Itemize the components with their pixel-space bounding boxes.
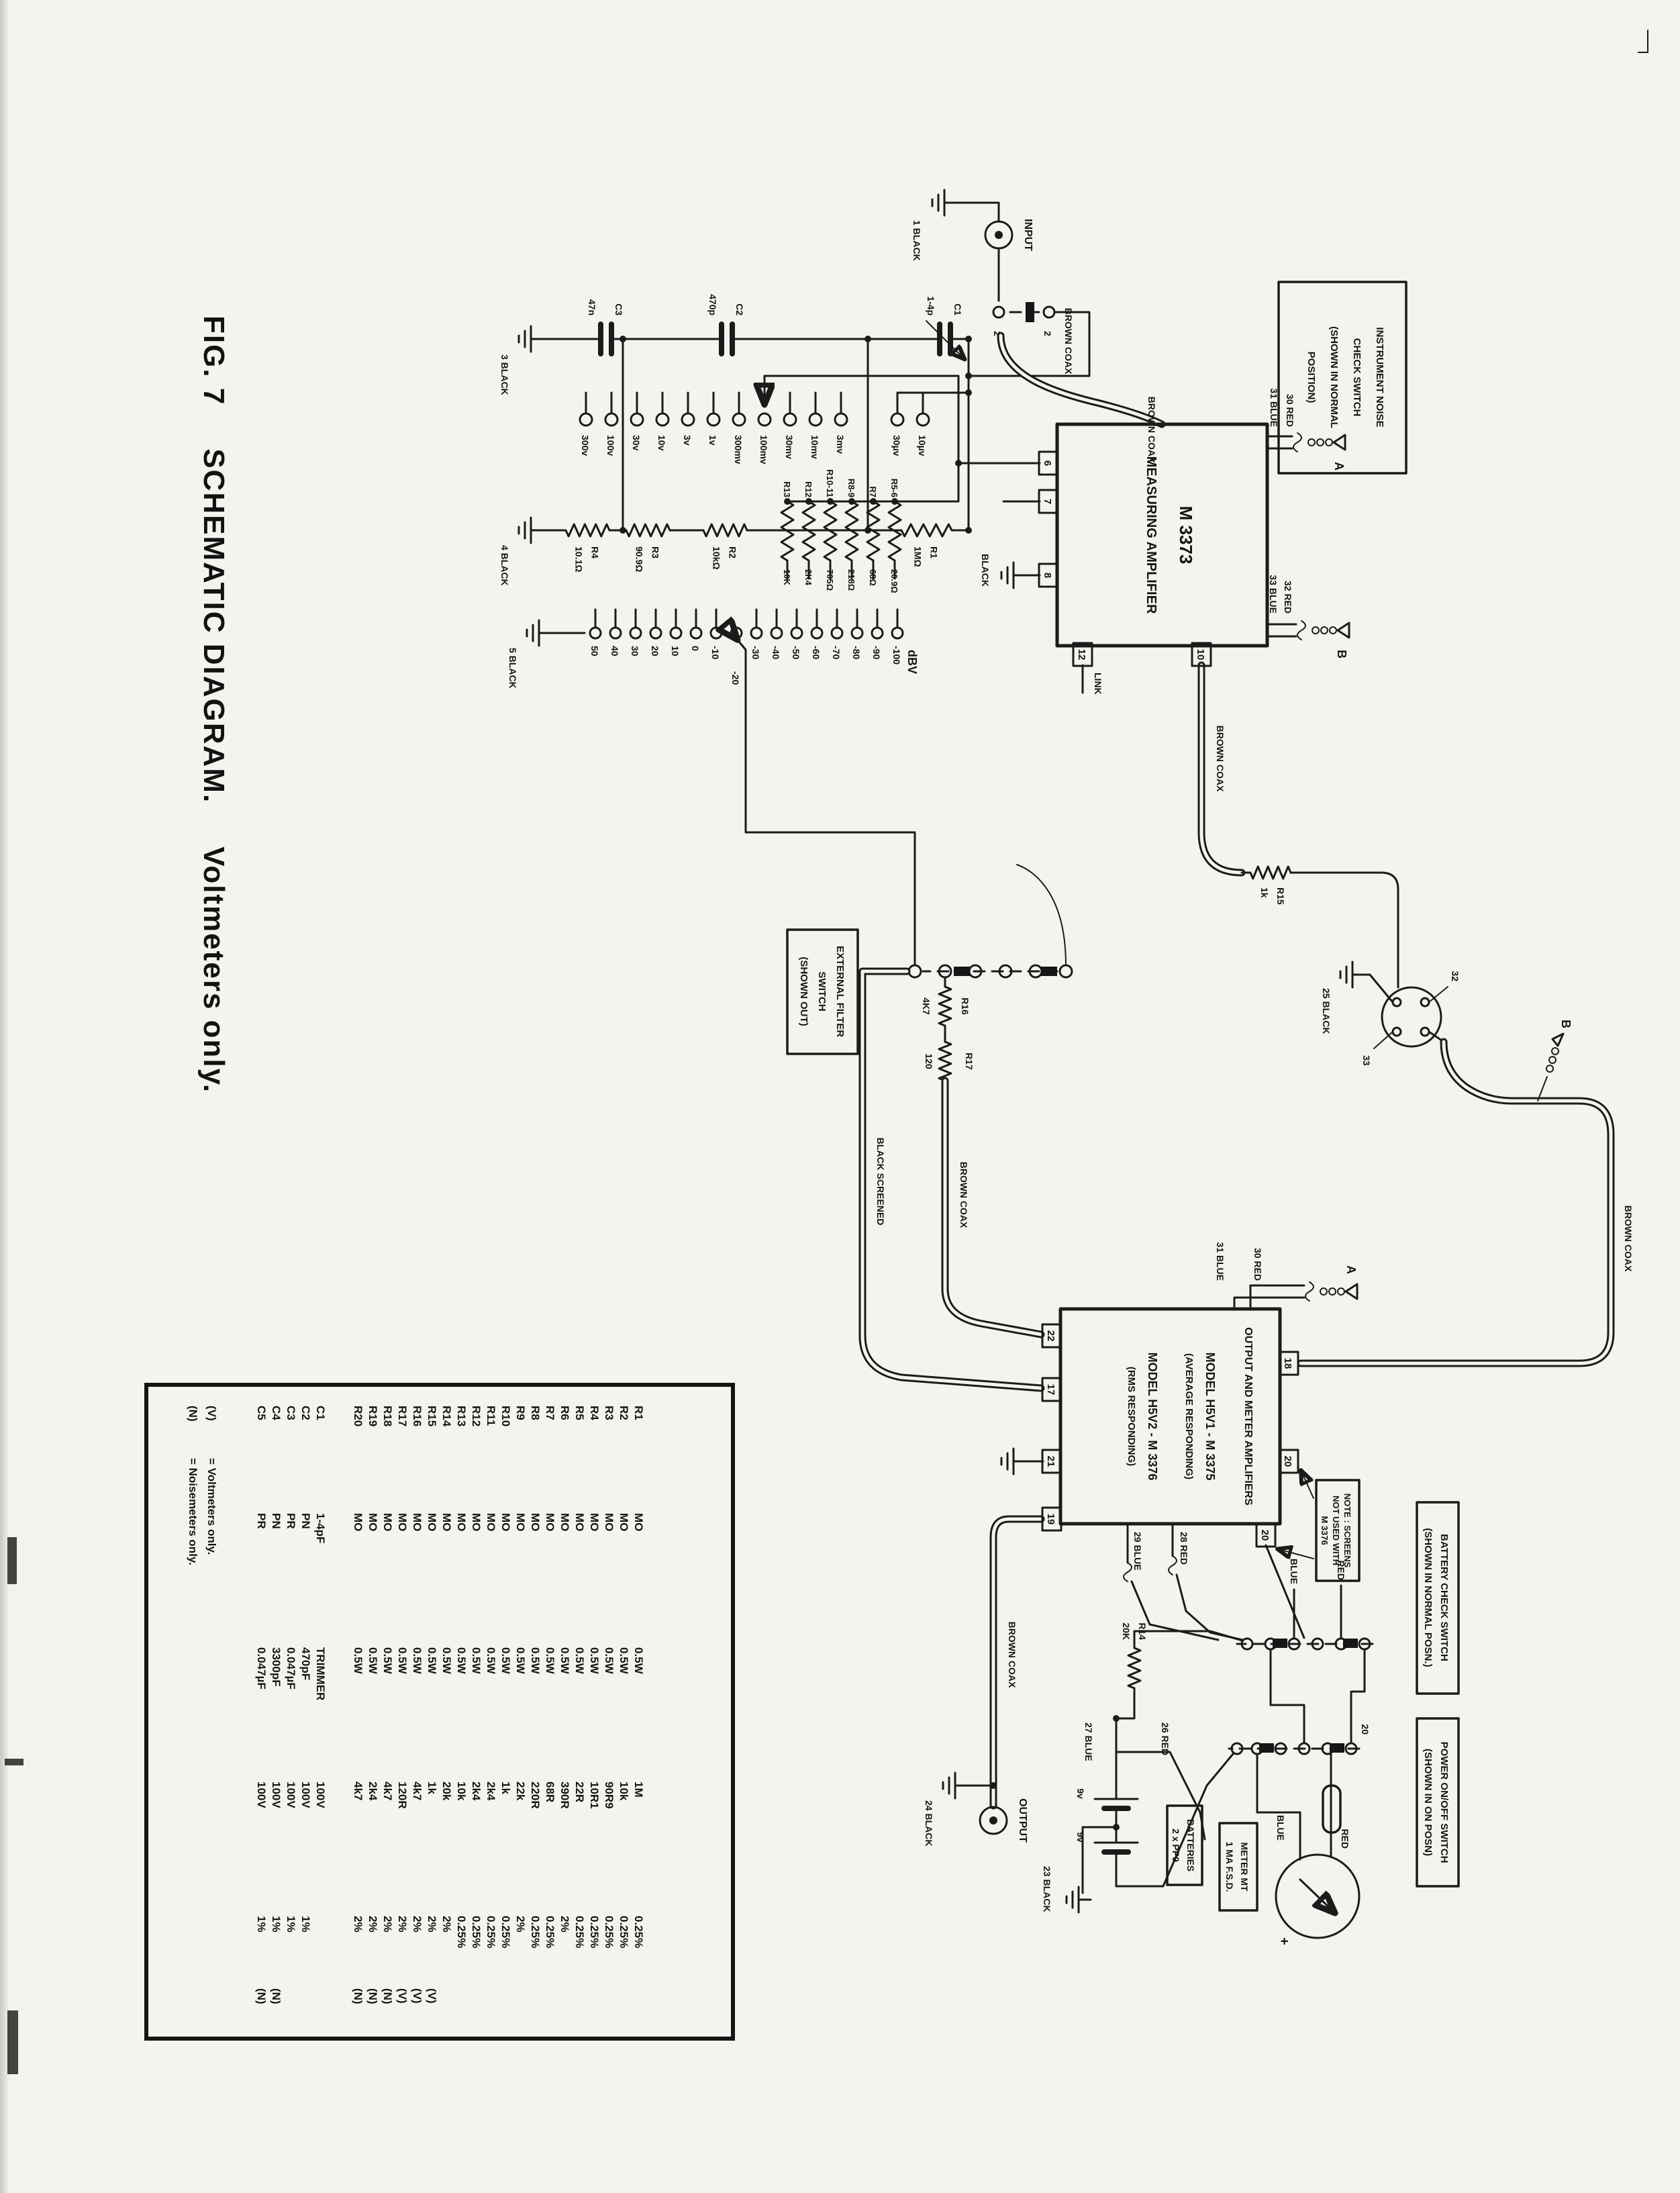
part-field: 2k4: [469, 1782, 483, 1800]
ground-21: [1001, 1449, 1026, 1474]
part-field: (N): [254, 1988, 268, 2004]
wire-31-blue: 31 BLUE: [1269, 388, 1279, 427]
dbv-tap-label: -100: [891, 646, 902, 665]
ground-23: [1067, 1887, 1091, 1912]
part-field: 4k7: [351, 1782, 364, 1800]
output-label: OUTPUT: [1017, 1798, 1028, 1843]
noise-switch-contact: [1044, 307, 1054, 318]
cap-value: 470p: [707, 294, 718, 315]
ground-3: [519, 326, 543, 352]
part-field: 100V: [299, 1782, 312, 1808]
noise-check-switch-box: [1279, 282, 1406, 473]
part-field: 0.25%: [587, 1916, 601, 1948]
round-connector: [1382, 987, 1441, 1046]
part-ref: R8: [528, 1406, 542, 1420]
ext-filter-line: EXTERNAL FILTER: [834, 946, 846, 1037]
part-ref: R15: [425, 1406, 438, 1426]
meter-section: + RED BLUE METER MT 1 MA F.S.D.: [1220, 1754, 1359, 1945]
pin-33-label: 33: [1361, 1055, 1372, 1066]
part-field: 10R1: [587, 1782, 601, 1809]
parts-table-row: C11-4pFTRIMMER100V: [312, 1387, 327, 2037]
ground-amp: [1001, 563, 1026, 588]
noise-box-line: CHECK SWITCH: [1351, 338, 1363, 417]
part-field: MO: [484, 1513, 497, 1531]
meter-box-line: METER MT: [1239, 1842, 1250, 1892]
part-field: 20k: [440, 1782, 453, 1800]
parts-table-legend-row: (N)= Noisemeters only.: [181, 1387, 199, 2037]
clip-a-label: A: [1332, 462, 1346, 471]
input-section: INPUT 1 BLACK 2 2 INSTRUMENT NOISE CHECK…: [911, 190, 1406, 473]
parts-table-row: R2MO0.5W10k0.25%: [615, 1387, 630, 2037]
parts-table-row: R14MO0.5W20k2%: [438, 1387, 453, 2037]
part-field: 0.047µF: [254, 1647, 268, 1690]
range-tap-label: 10mv: [809, 435, 820, 459]
part-field: 1%: [284, 1916, 297, 1933]
parts-table-row: R7MO0.5W68R0.25%: [542, 1387, 556, 2037]
figure-name: SCHEMATIC DIAGRAM.: [197, 448, 230, 803]
part-field: 1k: [425, 1782, 438, 1794]
cap-name: C3: [613, 303, 624, 315]
part-ref: C1: [313, 1406, 327, 1420]
part-field: MO: [499, 1513, 512, 1531]
part-field: 100V: [254, 1782, 268, 1808]
part-ref: R2: [617, 1406, 630, 1420]
part-ref: R19: [366, 1406, 379, 1426]
out-amp-line: MODEL H5V1 - M 3375: [1203, 1353, 1217, 1481]
part-field: 0.5W: [602, 1647, 615, 1674]
parts-table: R1MO0.5W1M0.25%R2MO0.5W10k0.25%R3MO0.5W9…: [144, 1383, 735, 2041]
ground-4-label: 4 BLACK: [499, 545, 510, 586]
part-field: 120R: [395, 1782, 409, 1809]
measuring-amp-model: M 3373: [1176, 506, 1196, 565]
resistor-R14: [1128, 1648, 1140, 1688]
part-field: 0.5W: [395, 1647, 409, 1674]
part-field: 100V: [313, 1782, 327, 1808]
part-field: 0.25%: [543, 1916, 556, 1948]
part-field: 0.5W: [366, 1647, 379, 1674]
ground-1-label: 1 BLACK: [911, 220, 922, 261]
part-field: PR: [254, 1513, 268, 1529]
range-tap: [835, 413, 847, 426]
part-field: (V): [395, 1988, 409, 2004]
part-field: 0.25%: [484, 1916, 497, 1948]
part-field: MO: [602, 1513, 615, 1531]
parts-table-row: R19MO0.5W2k42%(N): [364, 1387, 379, 2037]
part-field: 1%: [299, 1916, 312, 1933]
part-field: 4k7: [410, 1782, 424, 1800]
part-field: 10k: [617, 1782, 630, 1800]
out-amp-line: (RMS RESPONDING): [1126, 1367, 1137, 1466]
part-field: 0.5W: [528, 1647, 542, 1674]
part-field: 22k: [513, 1782, 527, 1800]
r16-name: R16: [960, 997, 971, 1015]
dbv-tap-label: -60: [811, 646, 822, 659]
battery-check-line: (SHOWN IN NORMAL POSN.): [1422, 1528, 1434, 1667]
terminal-number: 18: [1282, 1358, 1293, 1369]
part-field: 0.5W: [425, 1647, 438, 1674]
dbv-resistor-value: 20.9Ω: [889, 569, 899, 593]
dbv-tap: [711, 628, 722, 638]
part-field: 0.5W: [632, 1647, 645, 1674]
legend-text: = Voltmeters only.: [205, 1458, 218, 1555]
part-field: 0.5W: [381, 1647, 394, 1674]
part-field: 0.5W: [499, 1647, 512, 1674]
range-tap-label: 30v: [631, 435, 642, 451]
parts-table-row: R18MO0.5W4k72%(N): [379, 1387, 394, 2037]
part-field: 0.5W: [484, 1647, 497, 1674]
capacitor-C3: [601, 324, 611, 354]
part-field: TRIMMER: [313, 1647, 327, 1700]
range-tap: [784, 413, 796, 426]
dbv-tap: [771, 628, 782, 638]
brown-coax-label: BROWN COAX: [1063, 308, 1074, 375]
figure-number: FIG. 7: [197, 315, 230, 405]
range-tap-label: 3v: [682, 435, 693, 446]
dbv-resistor-name: R12: [803, 481, 813, 497]
crocodile-clip-b: [1338, 623, 1349, 638]
terminal-number: 20: [1282, 1456, 1293, 1467]
part-field: 0.5W: [351, 1647, 364, 1674]
part-field: (N): [351, 1988, 364, 2004]
wire-29-blue: 29 BLUE: [1132, 1532, 1143, 1571]
range-tap: [631, 413, 643, 426]
resistor-value: 10.1Ω: [574, 546, 585, 572]
wire-31-blue: 31 BLUE: [1215, 1242, 1226, 1281]
terminal-number: 19: [1045, 1514, 1056, 1525]
dbv-tap: [691, 628, 701, 638]
external-filter-switch: EXTERNAL FILTER SWITCH (SHOWN OUT) R16 4…: [787, 865, 1072, 1388]
dbv-resistor-value: 10K: [782, 569, 792, 585]
parts-table-row: R3MO0.5W90R90.25%: [601, 1387, 615, 2037]
dbv-tap-label: -20: [730, 671, 741, 685]
r15-name: R15: [1275, 887, 1286, 905]
resistor-R16: [939, 987, 951, 1026]
part-field: 0.5W: [469, 1647, 483, 1674]
part-ref: C3: [284, 1406, 297, 1420]
range-tap: [758, 413, 771, 426]
parts-table-row: R12MO0.5W2k40.25%: [468, 1387, 483, 2037]
parts-table-row: R10MO0.5W1k0.25%: [497, 1387, 512, 2037]
part-field: (N): [366, 1988, 379, 2004]
parts-table-row: R20MO0.5W4k72%(N): [350, 1387, 364, 2037]
dbv-resistor-name: R5-6: [889, 479, 899, 497]
measuring-amp-name: MEASURING AMPLIFIER: [1144, 456, 1158, 614]
parts-table-row: R8MO0.5W220R0.25%: [527, 1387, 542, 2037]
r14-value: 20K: [1121, 1622, 1132, 1640]
part-ref: R9: [513, 1406, 527, 1420]
part-ref: R10: [499, 1406, 512, 1426]
part-field: MO: [587, 1513, 601, 1531]
range-tap-label: 30mv: [784, 435, 795, 459]
part-ref: R6: [558, 1406, 571, 1420]
resistor-value: 10kΩ: [711, 546, 722, 570]
resistor-name: R4: [590, 546, 601, 558]
part-ref: R7: [543, 1406, 556, 1420]
parts-table-row: R16MO0.5W4k72%(V): [409, 1387, 424, 2037]
wire-blue-label: BLUE: [1289, 1559, 1299, 1584]
parts-table-row: C2PN470pF100V1%: [297, 1387, 312, 2037]
range-tap-label: 300v: [580, 435, 591, 456]
scanned-page: INPUT 1 BLACK 2 2 INSTRUMENT NOISE CHECK…: [0, 0, 1680, 2193]
wire-blue-label: BLUE: [1275, 1815, 1286, 1841]
range-tap-label: 30µv: [891, 435, 902, 456]
dbv-label: dBV: [905, 650, 919, 674]
parts-table-row: C5PR0.047µF100V1%(N): [253, 1387, 268, 2037]
battery-power-section: BATTERY CHECK SWITCH (SHOWN IN NORMAL PO…: [1042, 1502, 1459, 1912]
range-tap: [891, 413, 903, 426]
ground-24: [943, 1773, 967, 1798]
range-tap: [682, 413, 694, 426]
brown-coax-label: BROWN COAX: [958, 1162, 969, 1228]
dbv-tap-label: -90: [871, 646, 882, 659]
parts-table-row: R9MO0.5W22k2%: [512, 1387, 527, 2037]
part-field: MO: [558, 1513, 571, 1531]
crocodile-clip-b2: [1552, 1034, 1563, 1046]
parts-table-row: R1MO0.5W1M0.25%: [630, 1387, 645, 2037]
dbv-resistor-value: 218Ω: [846, 569, 856, 591]
wire-26-red: 26 RED: [1160, 1722, 1171, 1755]
dbv-tap: [852, 628, 862, 638]
dbv-tap: [791, 628, 802, 638]
dbv-resistor-value: 68Ω: [868, 569, 878, 586]
dbv-ladder: dBV 5 BLACK R5-620.9ΩR768ΩR8-9218ΩR10-11…: [507, 469, 919, 964]
dbv-tap-label: -40: [771, 646, 781, 659]
ground-4: [519, 518, 543, 543]
part-field: 90R9: [602, 1782, 615, 1809]
ground-25-label: 25 BLACK: [1321, 988, 1332, 1034]
figure-subtitle: Voltmeters only.: [197, 846, 230, 1093]
part-field: 1%: [254, 1916, 268, 1933]
part-field: 2%: [440, 1916, 453, 1933]
parts-table-row: C4PN3300pF100V1%(N): [268, 1387, 283, 2037]
dbv-tap-label: 20: [650, 646, 660, 656]
measuring-amplifier: M 3373 MEASURING AMPLIFIER BLACK LINK A …: [980, 388, 1349, 873]
part-field: 0.5W: [410, 1647, 424, 1674]
part-field: 2%: [351, 1916, 364, 1933]
out-amp-line: OUTPUT AND METER AMPLIFIERS: [1242, 1327, 1254, 1506]
part-field: 0.25%: [454, 1916, 468, 1948]
range-tap-label: 100v: [605, 435, 616, 456]
brown-coax-label: BROWN COAX: [1215, 726, 1226, 792]
range-tap-label: 10µv: [917, 435, 928, 456]
power-box-line: POWER ON/OFF SWITCH: [1438, 1742, 1450, 1863]
r16-value: 4K7: [921, 997, 932, 1015]
parts-table-legend-row: (V)= Voltmeters only.: [199, 1387, 218, 2037]
dbv-tap: [731, 628, 742, 638]
part-field: PN: [299, 1513, 312, 1529]
part-field: MO: [425, 1513, 438, 1531]
noise-box-line: INSTRUMENT NOISE: [1374, 327, 1385, 427]
part-field: 2%: [558, 1916, 571, 1933]
part-field: MO: [410, 1513, 424, 1531]
resistor-R3: [626, 524, 670, 536]
range-tap: [809, 413, 822, 426]
part-field: 2%: [395, 1916, 409, 1933]
dbv-tap-label: 40: [609, 646, 620, 656]
part-field: MO: [440, 1513, 453, 1531]
wire-30-red: 30 RED: [1285, 394, 1295, 427]
black-screened-label: BLACK SCREENED: [875, 1138, 886, 1226]
part-field: 390R: [558, 1782, 571, 1809]
range-tap-label: 3mv: [835, 435, 846, 454]
part-field: 0.25%: [573, 1916, 586, 1948]
part-field: 0.5W: [587, 1647, 601, 1674]
crocodile-clip-a: [1334, 435, 1345, 450]
parts-table-row: C3PR0.047µF100V1%: [283, 1387, 297, 2037]
part-ref: R16: [410, 1406, 424, 1426]
input-label: INPUT: [1022, 219, 1034, 251]
part-field: 2%: [381, 1916, 394, 1933]
part-ref: R11: [484, 1406, 497, 1426]
ext-filter-line: SWITCH: [816, 971, 828, 1011]
meter-needle: [1300, 1880, 1334, 1912]
wire-28-red: 28 RED: [1179, 1532, 1189, 1565]
terminal-number: 8: [1042, 573, 1053, 578]
resistor-R1: [901, 524, 952, 536]
part-field: 4k7: [381, 1782, 394, 1800]
cap-name: C1: [952, 303, 963, 315]
part-field: 0.25%: [602, 1916, 615, 1948]
output-section: BROWN COAX OUTPUT 24 BLACK: [924, 1519, 1041, 1846]
part-ref: R4: [587, 1406, 601, 1420]
part-ref: R13: [454, 1406, 468, 1426]
resistor-value: 1MΩ: [913, 546, 924, 567]
part-field: 0.047µF: [284, 1647, 297, 1690]
part-field: 0.25%: [528, 1916, 542, 1948]
crocodile-clip-a2: [1346, 1284, 1357, 1299]
parts-table-row: R6MO0.5W390R2%: [556, 1387, 571, 2037]
range-tap: [656, 413, 669, 426]
part-field: 0.25%: [499, 1916, 512, 1948]
range-tap-label: 10v: [656, 435, 667, 451]
part-ref: R1: [632, 1406, 645, 1420]
out-amp-line: (AVERAGE RESPONDING): [1183, 1353, 1195, 1479]
note-line: M 3376: [1320, 1516, 1330, 1545]
resistor-R4: [566, 524, 609, 536]
ground-23-label: 23 BLACK: [1042, 1866, 1052, 1912]
terminal-number: 7: [1042, 499, 1053, 504]
part-field: MO: [351, 1513, 364, 1531]
legend-symbol: (V): [205, 1406, 218, 1421]
part-ref: R3: [602, 1406, 615, 1420]
part-field: 220R: [528, 1782, 542, 1809]
part-field: MO: [454, 1513, 468, 1531]
dbv-tap: [832, 628, 842, 638]
part-field: PR: [284, 1513, 297, 1529]
noise-switch-contact: [993, 307, 1004, 318]
parts-table-row: R11MO0.5W2k40.25%: [483, 1387, 497, 2037]
dbv-tap-label: 30: [630, 646, 640, 656]
dbv-tap-label: -50: [791, 646, 801, 659]
cap-name: C2: [734, 303, 745, 315]
r17-name: R17: [964, 1053, 975, 1070]
dbv-tap-label: -70: [831, 646, 842, 659]
part-field: 2k4: [484, 1782, 497, 1800]
dbv-tap: [892, 628, 903, 638]
brown-coax-label: BROWN COAX: [1623, 1206, 1634, 1272]
dbv-tap-label: -30: [750, 646, 761, 659]
part-ref: R14: [440, 1406, 453, 1426]
ground-24-label: 24 BLACK: [924, 1800, 934, 1846]
part-field: PN: [269, 1513, 283, 1529]
range-tap: [733, 413, 745, 426]
parts-table-row: R15MO0.5W1k2%(V): [424, 1387, 438, 2037]
part-field: MO: [573, 1513, 586, 1531]
ground-25: [1340, 962, 1365, 987]
r15-value: 1k: [1259, 887, 1270, 898]
part-field: 0.5W: [513, 1647, 527, 1674]
measuring-amplifier-block: [1057, 424, 1267, 646]
part-field: 22R: [573, 1782, 586, 1802]
wire-27-blue: 27 BLUE: [1083, 1722, 1094, 1761]
part-field: MO: [366, 1513, 379, 1531]
batteries-line: BATTERIES: [1185, 1819, 1196, 1871]
terminal-number: 22: [1045, 1330, 1056, 1342]
dbv-resistor-value: 2K4: [803, 569, 813, 586]
part-field: 1k: [499, 1782, 512, 1794]
range-tap: [605, 413, 617, 426]
dbv-tap: [811, 628, 822, 638]
dbv-tap: [610, 628, 621, 638]
noise-box-line: (SHOWN IN NORMAL: [1328, 326, 1340, 428]
clip-b-label: B: [1335, 650, 1348, 659]
dbv-resistor-name: R13: [782, 481, 792, 497]
contact-2-label: 2: [1042, 331, 1053, 336]
part-field: 68R: [543, 1782, 556, 1802]
part-ref: R17: [395, 1406, 409, 1426]
range-tap: [917, 413, 929, 426]
part-field: MO: [617, 1513, 630, 1531]
part-ref: C2: [299, 1406, 312, 1420]
resistor-R2: [703, 524, 747, 536]
part-field: 1%: [269, 1916, 283, 1933]
cap-value: 1-4p: [926, 296, 936, 315]
legend-text: = Noisemeters only.: [186, 1458, 199, 1565]
wire-red-label: RED: [1336, 1560, 1346, 1580]
wire-red-label: RED: [1340, 1829, 1350, 1849]
dbv-tap: [590, 628, 601, 638]
wire-32-red: 32 RED: [1283, 581, 1293, 614]
brown-coax-label: BROWN COAX: [1146, 397, 1157, 463]
part-field: 100V: [284, 1782, 297, 1808]
part-field: 0.5W: [543, 1647, 556, 1674]
resistor-R15: [1250, 867, 1291, 879]
part-field: 3300pF: [269, 1647, 283, 1687]
part-field: 0.5W: [558, 1647, 571, 1674]
part-field: 10k: [454, 1782, 468, 1800]
power-box-line: (SHOWN IN ON POSN): [1422, 1749, 1434, 1856]
figure-title: FIG. 7 SCHEMATIC DIAGRAM. Voltmeters onl…: [197, 315, 230, 1093]
dbv-tap-label: 0: [690, 646, 701, 651]
note-line: NOT USED WITH: [1331, 1496, 1341, 1565]
part-field: 2%: [366, 1916, 379, 1933]
part-field: MO: [543, 1513, 556, 1531]
part-field: 0.5W: [617, 1647, 630, 1674]
dbv-tap-label: -10: [710, 646, 721, 659]
ext-filter-line: (SHOWN OUT): [798, 957, 809, 1026]
part-field: 0.25%: [617, 1916, 630, 1948]
resistor-name: R3: [650, 546, 661, 558]
battery-9v-label: 9v: [1075, 1832, 1086, 1843]
part-field: 2%: [513, 1916, 527, 1933]
part-field: (V): [410, 1988, 424, 2004]
part-field: (N): [269, 1988, 283, 2004]
wire-30-red: 30 RED: [1252, 1248, 1263, 1281]
meter-box-line: 1 MA F.S.D.: [1224, 1842, 1235, 1892]
parts-table-row: R4MO0.5W10R10.25%: [586, 1387, 601, 2037]
terminal-number: 6: [1042, 460, 1053, 466]
range-tap: [707, 413, 720, 426]
